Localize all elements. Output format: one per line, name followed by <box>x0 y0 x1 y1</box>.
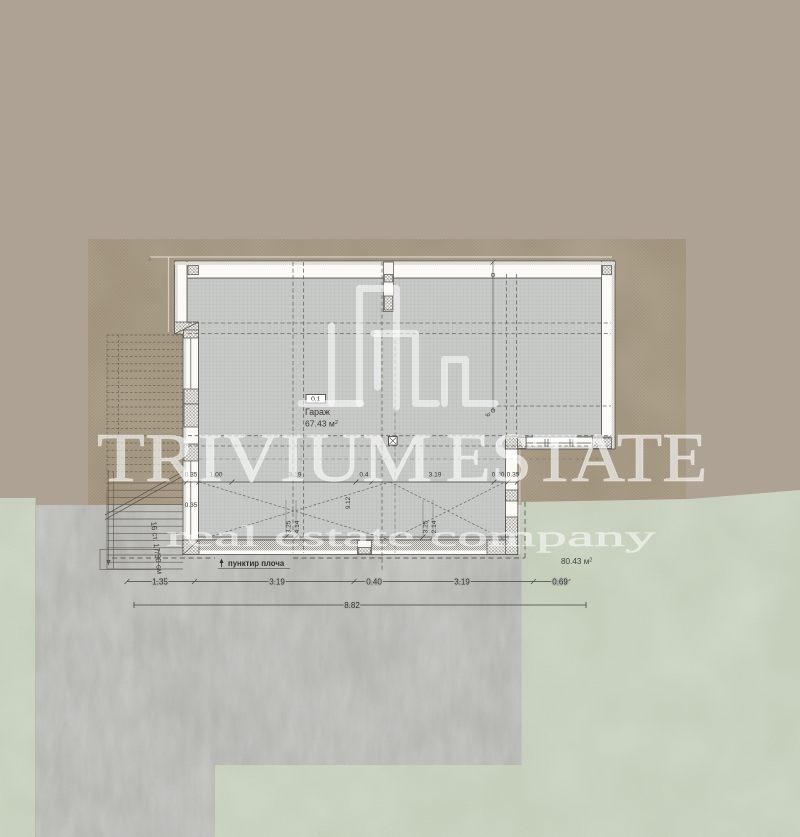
svg-text:пунктир плоча: пунктир плоча <box>228 559 285 568</box>
svg-text:real estate company: real estate company <box>166 520 656 553</box>
svg-text:9.12: 9.12 <box>345 496 352 509</box>
svg-text:0.40: 0.40 <box>366 578 382 587</box>
svg-text:8.82: 8.82 <box>344 601 360 610</box>
svg-text:0.35: 0.35 <box>185 502 198 509</box>
svg-text:Гараж: Гараж <box>305 407 330 417</box>
svg-text:3.19: 3.19 <box>269 578 285 587</box>
svg-text:6.: 6. <box>485 411 492 416</box>
svg-text:0.69: 0.69 <box>552 578 568 587</box>
svg-text:1.35: 1.35 <box>152 578 168 587</box>
svg-text:ESTATE: ESTATE <box>446 420 708 497</box>
svg-text:80.43 м2: 80.43 м2 <box>561 557 592 566</box>
svg-text:TRIVIUM: TRIVIUM <box>97 420 432 497</box>
svg-text:3.19: 3.19 <box>454 578 470 587</box>
